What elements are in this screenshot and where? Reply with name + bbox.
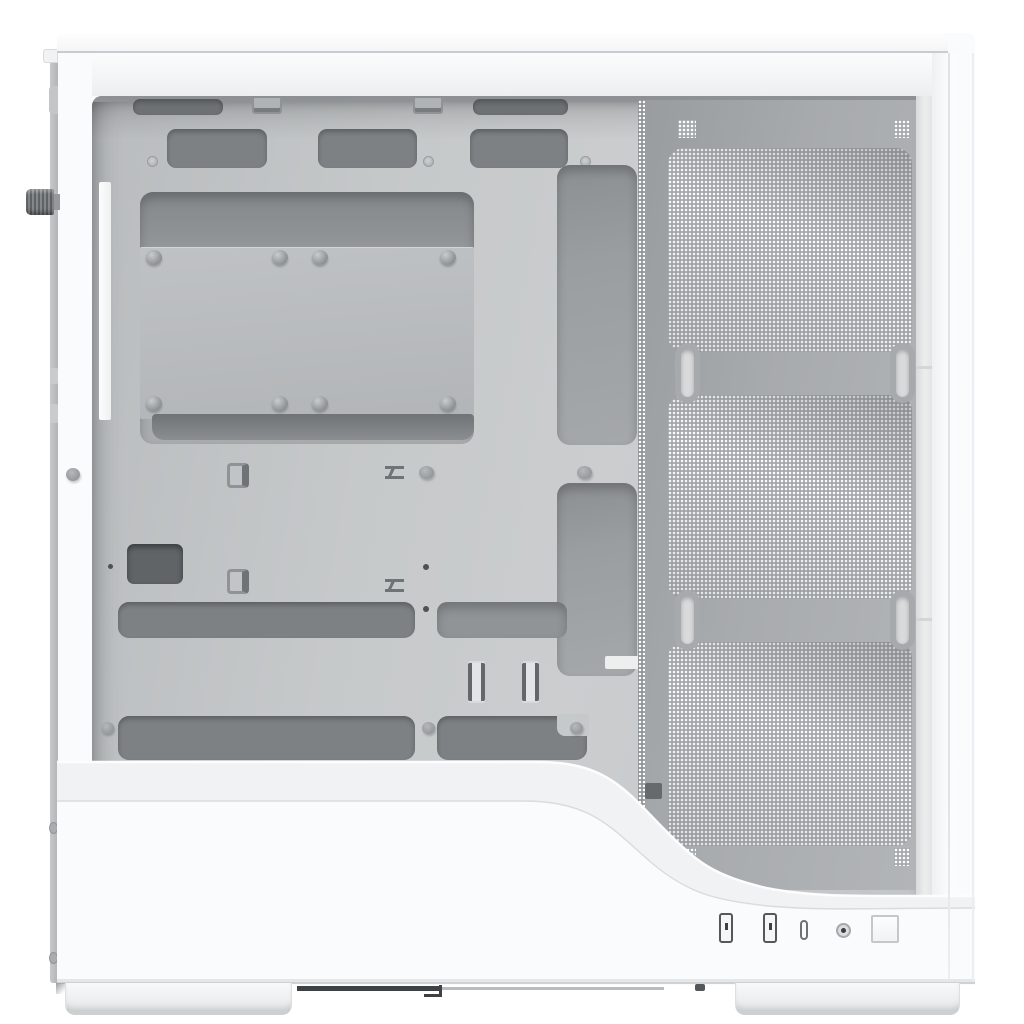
- audio-jack: [836, 923, 851, 938]
- usb-c-port: [800, 920, 808, 940]
- under-dark-bar: [297, 986, 442, 991]
- front-panel-right-edge: [972, 53, 974, 981]
- case-foot-left: [65, 983, 292, 1015]
- shroud-lower: [57, 801, 975, 985]
- usb-a-port-1: [719, 913, 733, 943]
- under-faint-line: [442, 987, 664, 990]
- usb-pin: [769, 923, 772, 930]
- under-case-slot: [297, 984, 665, 994]
- jack-hole: [841, 928, 846, 933]
- bottom-shroud: [0, 0, 1024, 1024]
- front-io-panel: [700, 905, 980, 950]
- case-foot-right: [735, 983, 960, 1015]
- power-button: [871, 915, 899, 943]
- under-hook: [424, 985, 442, 997]
- under-nub: [695, 984, 705, 991]
- pc-case-product-photo: [0, 0, 1024, 1024]
- usb-pin: [725, 923, 728, 930]
- front-panel-seam: [948, 53, 950, 979]
- usb-a-port-2: [763, 913, 777, 943]
